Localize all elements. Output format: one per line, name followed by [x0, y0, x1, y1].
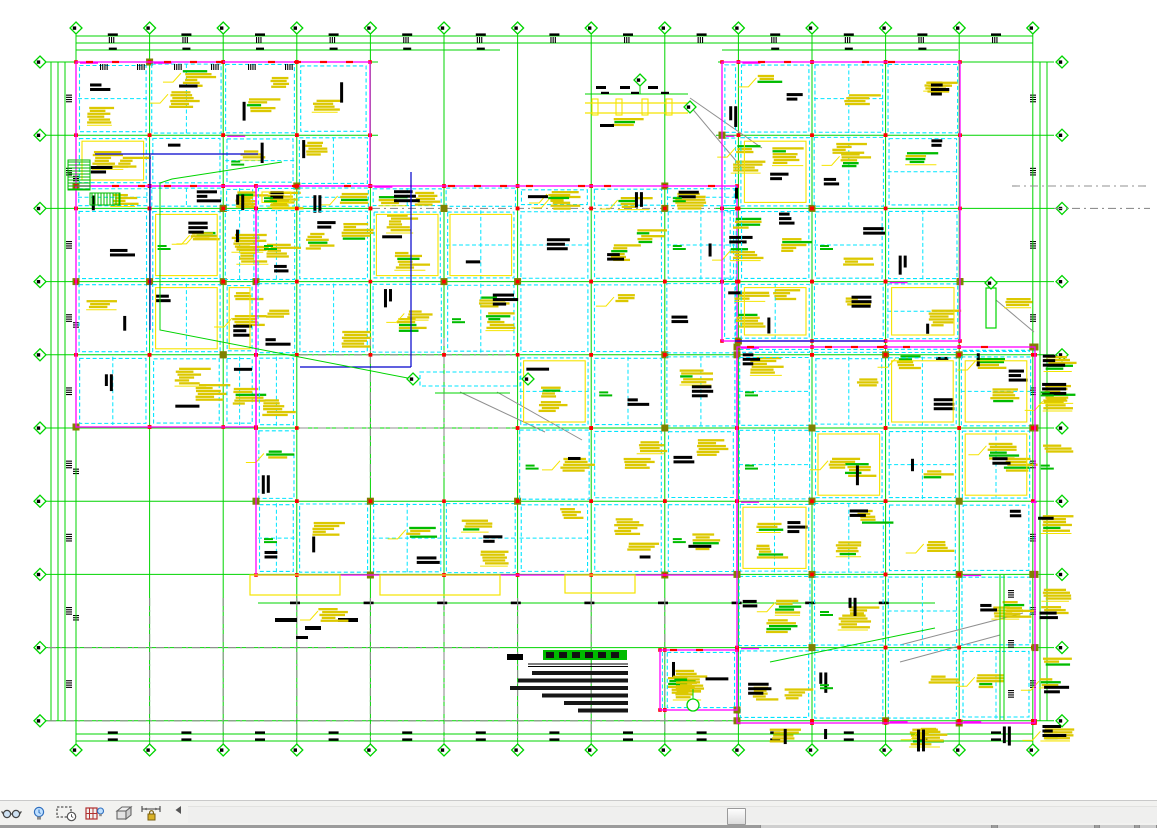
reveal-constraints-icon[interactable]: [140, 805, 164, 822]
analytical-model-icon[interactable]: [84, 805, 108, 822]
reveal-hidden-elements-icon[interactable]: [31, 805, 55, 822]
cad-application-window: [0, 0, 1157, 828]
horizontal-scrollbar-thumb[interactable]: [727, 808, 746, 825]
view-toolbar-icons: [0, 801, 190, 825]
temporary-hide-isolate-icon[interactable]: [1, 805, 25, 822]
view-control-bar: [0, 800, 1157, 825]
temporary-view-properties-icon[interactable]: [56, 805, 80, 822]
drawing-viewport[interactable]: [0, 0, 1157, 800]
displacement-sets-icon[interactable]: [114, 805, 138, 822]
horizontal-scrollbar-track[interactable]: [188, 806, 1157, 823]
drawing-canvas[interactable]: [0, 0, 1157, 800]
